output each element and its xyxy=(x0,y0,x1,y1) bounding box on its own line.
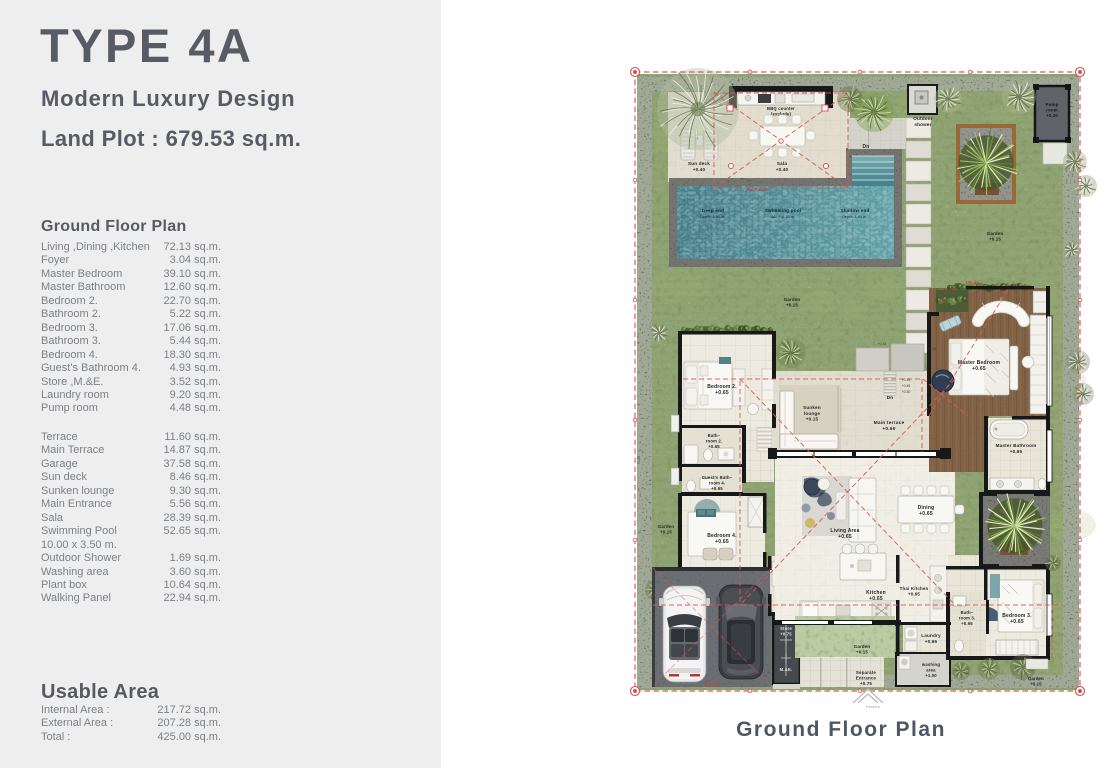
svg-text:+0.15: +0.15 xyxy=(989,237,1001,242)
svg-text:Store: Store xyxy=(780,626,792,631)
svg-text:room 2.: room 2. xyxy=(706,438,723,443)
svg-text:Dining: Dining xyxy=(918,505,935,511)
svg-text:+1.00: +1.00 xyxy=(925,673,937,678)
svg-text:BBQ counter: BBQ counter xyxy=(767,106,795,111)
svg-text:+0.15: +0.15 xyxy=(1030,681,1042,686)
svg-text:Bath–: Bath– xyxy=(961,610,974,615)
svg-text:+0.60: +0.60 xyxy=(882,426,895,432)
svg-text:+0.65: +0.65 xyxy=(972,366,986,372)
svg-text:Main terrace: Main terrace xyxy=(874,420,905,426)
svg-text:+0.15: +0.15 xyxy=(806,417,819,422)
svg-text:+0.75: +0.75 xyxy=(860,681,872,686)
svg-text:Entrance: Entrance xyxy=(856,676,877,681)
svg-text:+0.15: +0.15 xyxy=(786,303,798,308)
svg-text:Deep end: Deep end xyxy=(702,208,724,213)
svg-text:room 4.: room 4. xyxy=(709,480,726,485)
svg-text:Garden: Garden xyxy=(658,524,675,529)
svg-text:+0.65: +0.65 xyxy=(708,444,720,449)
svg-text:+0.65: +0.65 xyxy=(1010,449,1023,454)
svg-text:+0.15: +0.15 xyxy=(660,530,672,535)
svg-text:Depth -1.50 m.: Depth -1.50 m. xyxy=(700,215,725,219)
svg-text:Sun deck: Sun deck xyxy=(688,161,710,166)
svg-text:Dn: Dn xyxy=(862,144,869,150)
svg-text:100 dia.: 100 dia. xyxy=(965,280,980,285)
svg-text:room 3.: room 3. xyxy=(959,615,976,620)
svg-text:+0.30: +0.30 xyxy=(1046,113,1058,118)
svg-text:Garden: Garden xyxy=(987,231,1004,236)
svg-text:+0.30: +0.30 xyxy=(902,390,911,394)
svg-text:+0.65: +0.65 xyxy=(715,539,729,545)
svg-text:+0.15: +0.15 xyxy=(856,650,868,655)
svg-text:+0.15: +0.15 xyxy=(878,342,887,346)
svg-text:Sala: Sala xyxy=(777,161,787,166)
svg-text:area: area xyxy=(926,667,936,672)
svg-text:room: room xyxy=(1046,108,1058,113)
svg-text:+0.65: +0.65 xyxy=(715,390,729,396)
svg-text:+0.45: +0.45 xyxy=(902,384,911,388)
svg-text:Bedroom 2.: Bedroom 2. xyxy=(707,384,737,390)
svg-text:Sunken: Sunken xyxy=(803,405,821,410)
svg-text:Fence's: Fence's xyxy=(866,704,880,709)
svg-text:Master Bathroom: Master Bathroom xyxy=(996,443,1037,448)
svg-text:Master Bedroom: Master Bedroom xyxy=(958,360,1001,366)
svg-text:Bath–: Bath– xyxy=(708,433,721,438)
svg-text:shower: shower xyxy=(914,122,931,127)
svg-text:Garden: Garden xyxy=(1028,676,1044,681)
svg-text:+0.65: +0.65 xyxy=(1010,619,1024,625)
svg-text:850 SC.: 850 SC. xyxy=(704,682,720,687)
svg-text:Bedroom 4.: Bedroom 4. xyxy=(707,533,737,539)
svg-text:Bedroom 3.: Bedroom 3. xyxy=(1002,613,1032,619)
svg-text:Separate: Separate xyxy=(856,670,877,675)
svg-text:+0.40: +0.40 xyxy=(693,167,706,172)
svg-text:+0.65: +0.65 xyxy=(838,534,852,540)
svg-text:ROOF LINE: ROOF LINE xyxy=(747,188,768,192)
svg-text:Shallow end: Shallow end xyxy=(841,208,870,213)
svg-text:Guest's Bath–: Guest's Bath– xyxy=(702,475,733,480)
svg-text:Garden: Garden xyxy=(854,644,871,649)
svg-text:+0.15: +0.15 xyxy=(902,378,911,382)
svg-text:Kitchen: Kitchen xyxy=(866,590,886,596)
svg-text:+0.65: +0.65 xyxy=(961,621,973,626)
svg-text:Pump: Pump xyxy=(1046,102,1059,107)
svg-text:lounge: lounge xyxy=(804,411,821,416)
svg-text:+0.65: +0.65 xyxy=(908,592,920,597)
svg-text:+0.15: +0.15 xyxy=(928,347,937,351)
svg-text:Garden: Garden xyxy=(784,297,801,302)
svg-text:Swimming pool: Swimming pool xyxy=(765,208,802,213)
svg-text:+0.65: +0.65 xyxy=(919,511,933,517)
svg-text:+0.15: +0.15 xyxy=(637,456,641,465)
svg-text:+0.75: +0.75 xyxy=(780,631,792,636)
svg-text:Dn: Dn xyxy=(887,395,894,400)
svg-text:Thai Kitchen: Thai Kitchen xyxy=(900,586,929,591)
svg-text:+0.65: +0.65 xyxy=(711,486,723,491)
svg-text:WL. +-0.20 m.: WL. +-0.20 m. xyxy=(771,215,795,219)
svg-text:Outdoor: Outdoor xyxy=(913,116,933,121)
svg-text:+0.65: +0.65 xyxy=(925,639,938,644)
svg-text:+0.40: +0.40 xyxy=(776,167,789,172)
svg-text:Depth -1.40 m.: Depth -1.40 m. xyxy=(842,215,867,219)
svg-text:M.&E.: M.&E. xyxy=(780,667,793,672)
svg-text:washing: washing xyxy=(921,662,940,667)
svg-text:Living Area: Living Area xyxy=(830,528,859,534)
svg-text:Laundry: Laundry xyxy=(921,633,941,638)
